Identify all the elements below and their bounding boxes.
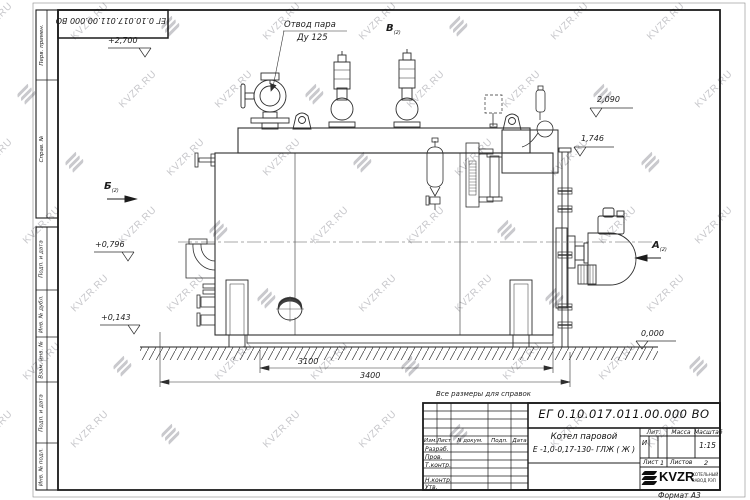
massa-label: Масса: [667, 429, 695, 436]
header-doc: N докум.: [452, 438, 488, 444]
view-label-b: Б(2): [104, 181, 119, 194]
left-fittings: [186, 153, 215, 326]
masshtab-label: Масштаб: [694, 429, 720, 436]
row-prov: Пров.: [425, 454, 442, 461]
view-label-a: А(2): [652, 240, 667, 253]
row-razrab: Разраб.: [425, 446, 449, 453]
row-nkontr: Н.контр.: [425, 477, 452, 484]
instrument-zone: [426, 86, 558, 210]
header-data: Дата: [511, 438, 528, 444]
drawing-sheet: ЕГ 0.10.017.011.00.000 ВО Перв. примен. …: [0, 0, 750, 500]
frame-label-vzam-inv: Взам. инв. №: [37, 337, 47, 382]
dimension-3400: 3400: [360, 371, 380, 380]
elevation-marks: [94, 48, 676, 349]
row-utv: Утв.: [425, 484, 438, 491]
boiler-drawing: [0, 0, 750, 500]
frame-label-sprav-no: Справ. №: [37, 80, 47, 218]
support-leg-left: [226, 280, 248, 335]
title-designation: ЕГ 0.10.017.011.00.000 ВО: [530, 407, 718, 421]
frame-label-inv-dubl: Инв. № дубл.: [37, 290, 47, 337]
steam-outlet-label-line2: Ду 125: [297, 33, 328, 43]
lit-value: И: [640, 439, 649, 447]
list-label: Лист: [643, 459, 658, 466]
view-label-v: В(2): [386, 23, 401, 36]
elevation-2090: 2,090: [597, 95, 620, 104]
steam-outlet-valve: [241, 73, 289, 129]
product-name-line1: Котел паровой: [532, 432, 636, 442]
boiler-body: [178, 128, 655, 347]
frame-label-podp-data-2: Подп. и дата: [37, 382, 47, 443]
support-leg-right: [510, 280, 532, 335]
listov-label: Листов: [670, 459, 692, 466]
kvzr-logo-sub1: КОТЕЛЬНЫЙ: [692, 472, 718, 477]
top-stamp-designation: ЕГ 0.10.017.011.00.000 ВО: [60, 16, 166, 25]
view-arrows: [107, 196, 661, 261]
frame-label-perv-primen: Перв. примен.: [37, 10, 47, 80]
masshtab-value: 1:15: [695, 441, 720, 450]
lit-label: Лит.: [640, 429, 667, 436]
safety-valve-1: [329, 51, 355, 127]
elevation-0796: +0,796: [95, 240, 125, 249]
manhole: [276, 296, 304, 322]
header-izm: Изм.: [424, 438, 437, 444]
elevation-2700: +2,700: [108, 36, 138, 45]
elevation-0143: +0,143: [101, 313, 131, 322]
ground-hatching: [140, 347, 658, 360]
separator-column: [426, 138, 443, 210]
product-name-line2: Е -1,0-0,17-130- ГЛЖ ( Ж ): [529, 445, 639, 454]
frame-label-inv-podl: Инв. № подл.: [37, 443, 47, 490]
elevation-1746: 1,746: [581, 134, 604, 143]
kvzr-logo-text: KVZR: [659, 469, 694, 484]
steam-outlet-label-line1: Отвод пара: [284, 20, 336, 30]
elevation-0000: 0,000: [641, 329, 664, 338]
row-tkontr: Т.контр.: [425, 462, 451, 469]
kvzr-logo-icon: [643, 470, 656, 486]
reference-note: Все размеры для справок: [436, 390, 531, 398]
flue-elbow: [186, 244, 215, 278]
listov-value: 2: [704, 459, 708, 467]
kvzr-logo-sub2: ЗАВОД РЭП: [692, 478, 716, 483]
standpipe: [558, 148, 572, 347]
safety-valve-2: [394, 49, 420, 127]
dashed-box: [485, 95, 502, 113]
list-value: 1: [660, 459, 664, 467]
pressure-gauge: [522, 86, 553, 147]
format-label: Формат А3: [658, 491, 701, 500]
dimension-3100: 3100: [298, 357, 318, 366]
header-podp: Подп.: [488, 438, 511, 444]
sheet-edge: [33, 3, 745, 497]
frame-label-podp-data-1: Подп. и дата: [37, 227, 47, 290]
header-list: Лист: [437, 438, 451, 444]
